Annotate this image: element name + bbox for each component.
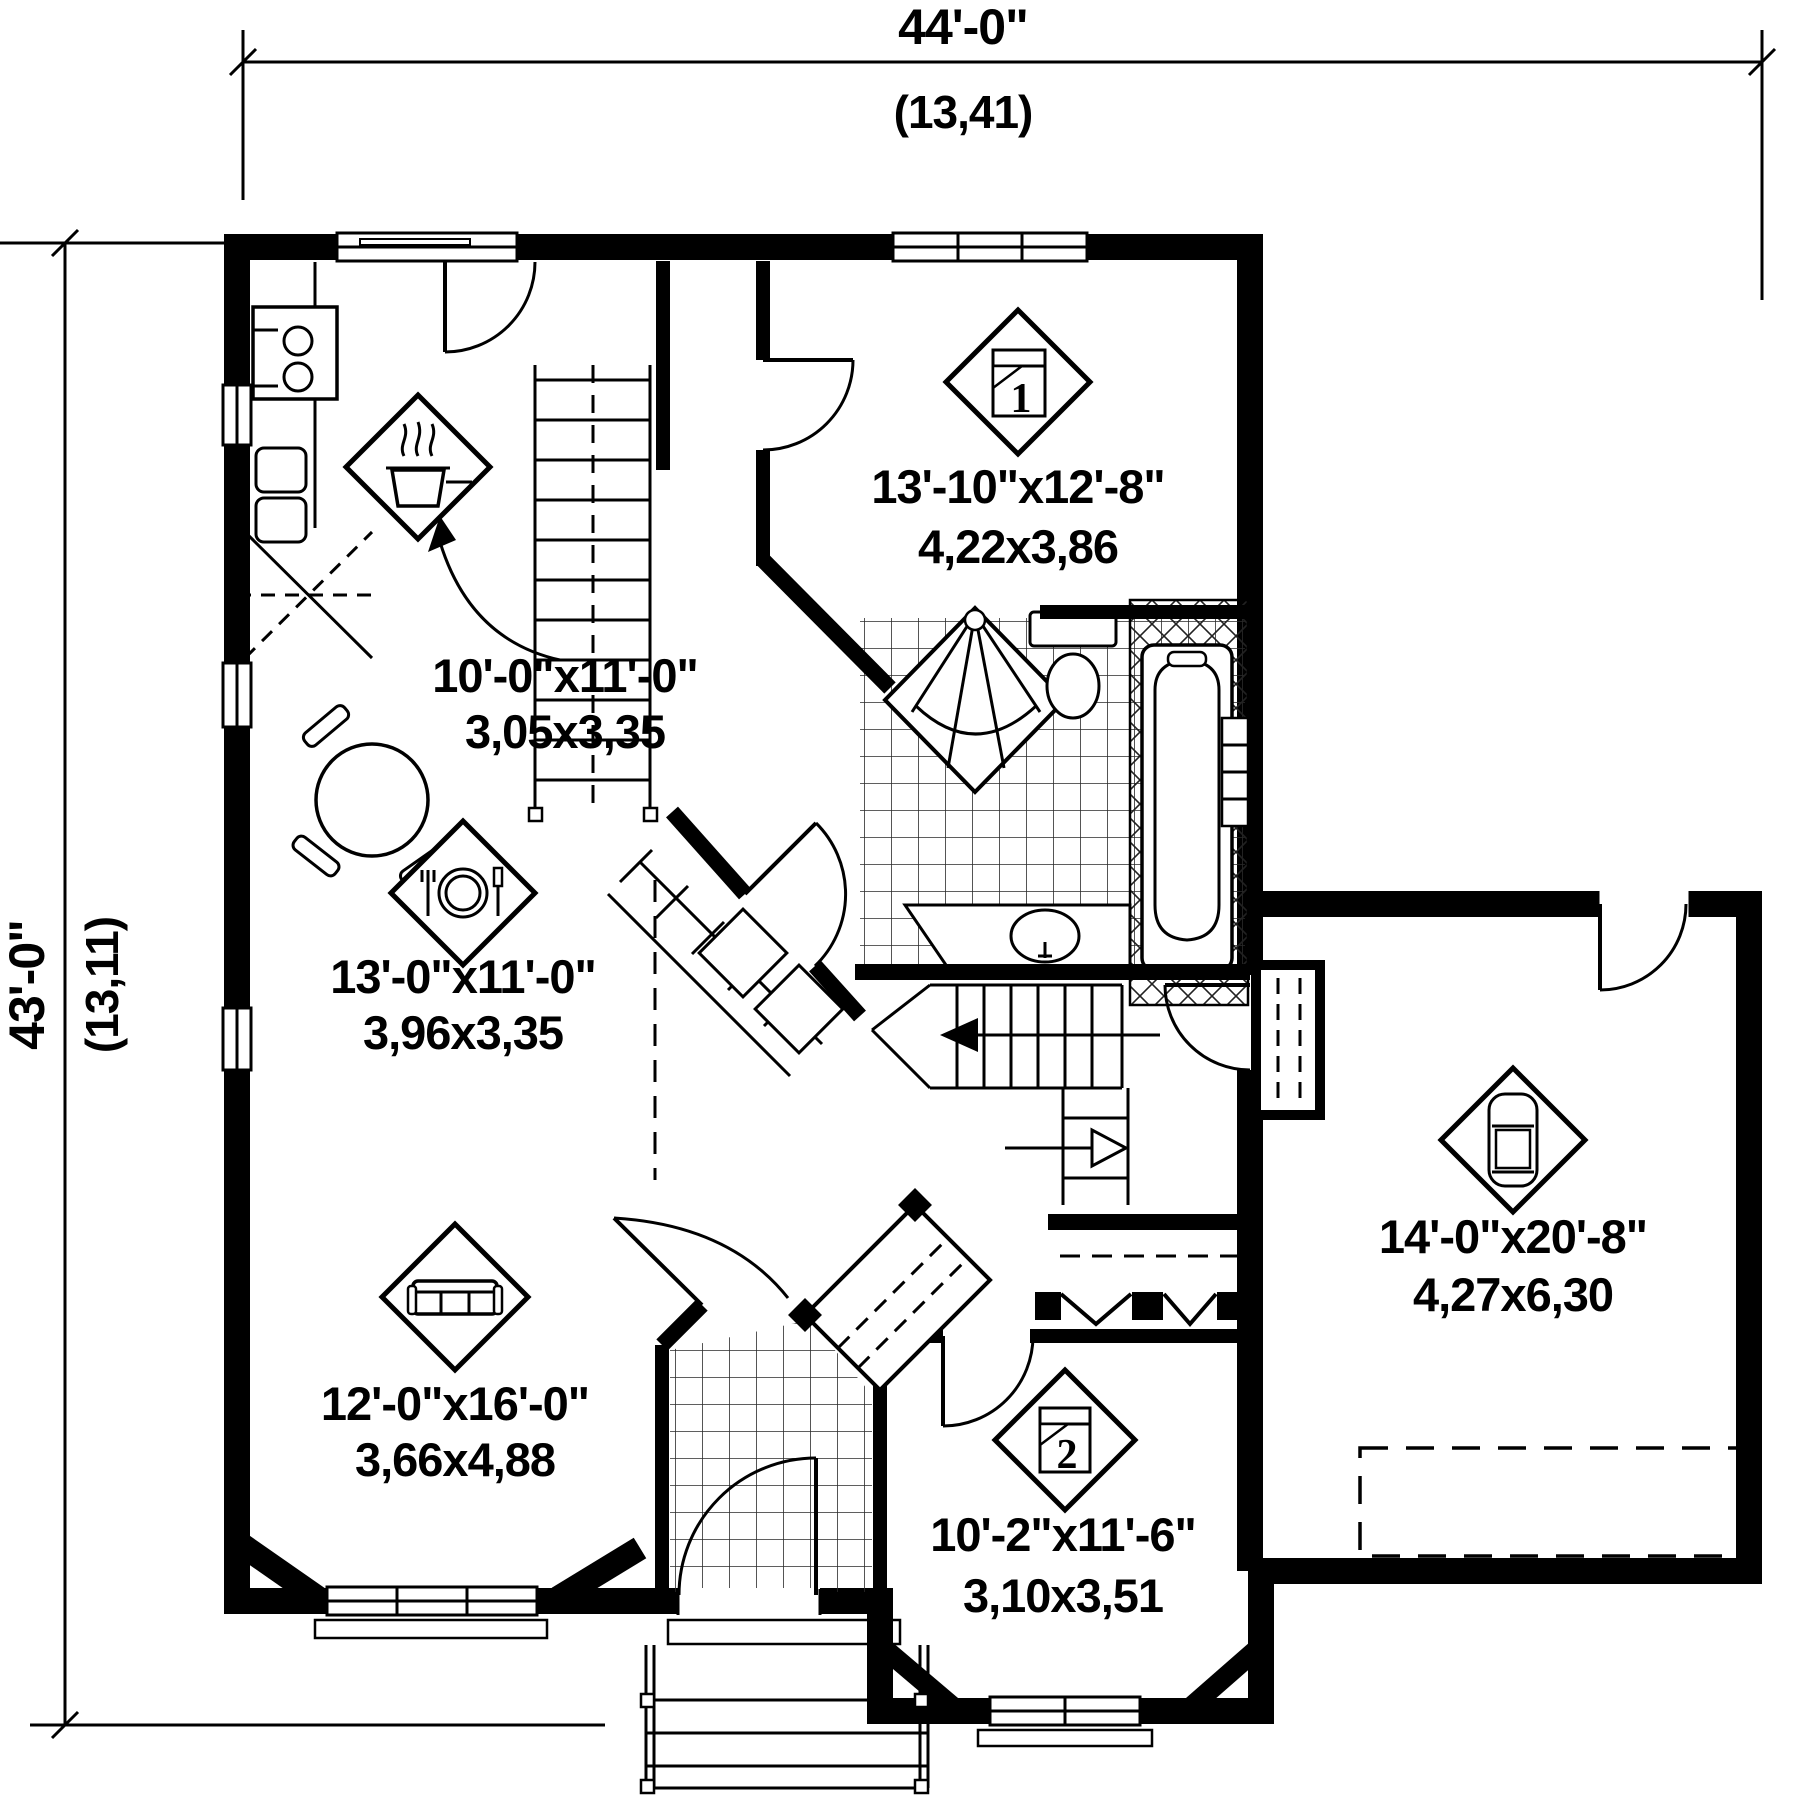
bedroom1-dim-imperial: 13'-10"x12'-8" [871, 460, 1164, 513]
dining-dim-metric: 3,96x3,35 [363, 1006, 563, 1059]
car-icon [1489, 1094, 1537, 1186]
sofa-icon [408, 1281, 502, 1314]
bedroom1-window [893, 233, 1087, 261]
garage-dim-imperial: 14'-0"x20'-8" [1379, 1210, 1647, 1263]
left-dimension-metric: (13,11) [76, 917, 128, 1053]
living-dim-metric: 3,66x4,88 [355, 1433, 555, 1486]
garage-dim-metric: 4,27x6,30 [1413, 1268, 1613, 1321]
garage-closet-bump [1256, 965, 1320, 1115]
bedroom2-dim-metric: 3,10x3,51 [963, 1569, 1163, 1622]
stove-icon [253, 307, 337, 399]
kitchen-window [337, 233, 517, 261]
floor-plan-page: 44'-0" (13,41) 43'-0" (13,11) [0, 0, 1793, 1800]
vestibule-tile-floor [670, 1320, 872, 1592]
bedroom2-dim-imperial: 10'-2"x11'-6" [930, 1508, 1196, 1561]
bedroom1-number: 1 [1011, 376, 1032, 422]
dining-dim-imperial: 13'-0"x11'-0" [330, 950, 596, 1003]
kitchen-dim-imperial: 10'-0"x11'-0" [432, 649, 698, 702]
bedroom2-number: 2 [1057, 1432, 1078, 1478]
linen-shelves [1222, 718, 1248, 826]
top-dimension-metric: (13,41) [894, 86, 1033, 138]
bathtub-icon [1142, 645, 1232, 970]
bedroom1-dim-metric: 4,22x3,86 [918, 520, 1118, 573]
left-wall-window [223, 385, 251, 445]
left-wall-window [223, 663, 251, 727]
floor-plan-drawing: 44'-0" (13,41) 43'-0" (13,11) [0, 0, 1793, 1800]
kitchen-dim-metric: 3,05x3,35 [465, 705, 665, 758]
left-dimension-imperial: 43'-0" [0, 920, 55, 1050]
living-dim-imperial: 12'-0"x16'-0" [321, 1377, 589, 1430]
left-wall-window [223, 1008, 251, 1070]
top-dimension-imperial: 44'-0" [898, 0, 1028, 55]
